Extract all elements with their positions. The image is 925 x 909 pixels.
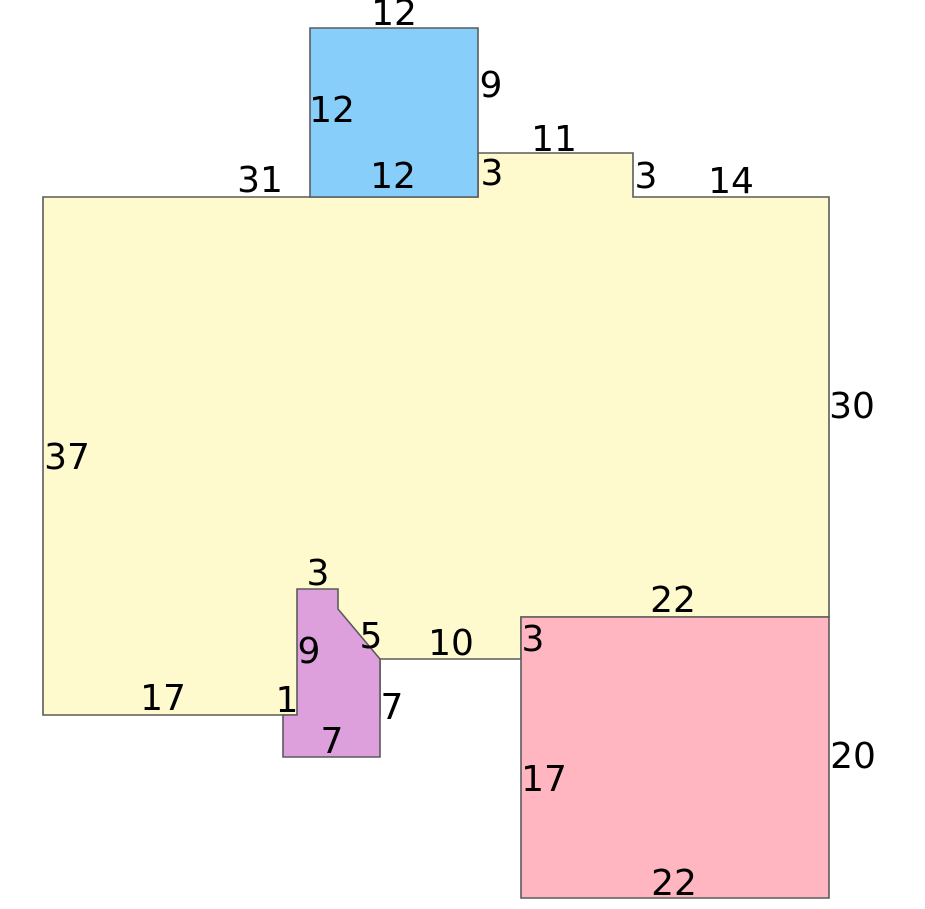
pink-left-label: 17 (521, 759, 567, 800)
purple-diagonal-label: 5 (360, 616, 383, 657)
blue-square-top-label: 12 (371, 0, 417, 34)
blue-square-right-label: 9 (480, 65, 503, 106)
yellow-bottom-left-label: 17 (140, 678, 186, 719)
purple-top-label: 3 (307, 553, 330, 594)
yellow-notch-left-label: 3 (481, 153, 504, 194)
pink-rectangle (521, 617, 829, 898)
purple-right-label: 7 (381, 687, 404, 728)
yellow-step-label: 3 (522, 619, 545, 660)
yellow-right-label: 30 (829, 386, 875, 427)
yellow-notch-top-label: 11 (531, 119, 577, 160)
yellow-bottom-middle-label: 10 (428, 623, 474, 664)
yellow-top-left-label: 31 (237, 160, 283, 201)
pink-bottom-label: 22 (651, 863, 697, 904)
pink-right-label: 20 (830, 736, 876, 777)
yellow-top-right-label: 14 (708, 161, 754, 202)
geometry-diagram-canvas: 12 9 12 12 31 3 11 3 14 30 37 17 10 22 3… (0, 0, 925, 909)
yellow-left-label: 37 (44, 437, 90, 478)
yellow-bottom-right-label: 22 (650, 580, 696, 621)
purple-step-label: 1 (276, 680, 299, 721)
diagram-page: 12 9 12 12 31 3 11 3 14 30 37 17 10 22 3… (0, 0, 925, 909)
yellow-notch-right-label: 3 (635, 156, 658, 197)
purple-left-label: 9 (298, 631, 321, 672)
purple-bottom-label: 7 (321, 721, 344, 762)
blue-square-left-label: 12 (309, 90, 355, 131)
blue-square-bottom-label: 12 (370, 156, 416, 197)
